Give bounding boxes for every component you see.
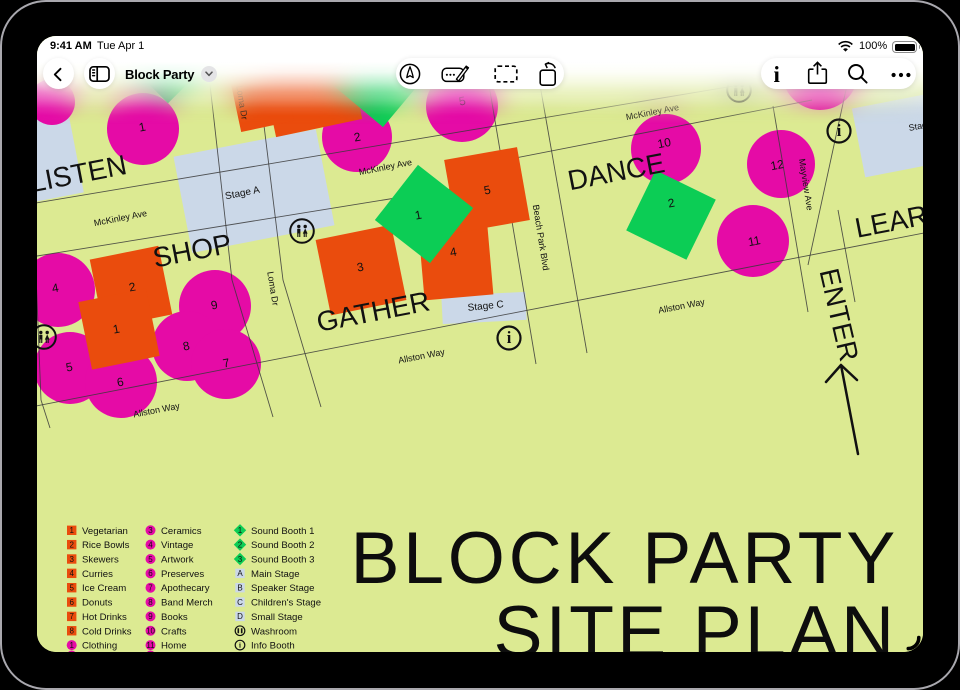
svg-text:Home: Home: [161, 641, 187, 652]
svg-text:6: 6: [148, 569, 153, 578]
svg-text:A: A: [237, 569, 243, 578]
svg-text:Band Merch: Band Merch: [161, 598, 213, 609]
svg-text:Rice Bowls: Rice Bowls: [82, 540, 130, 551]
svg-text:8: 8: [69, 627, 74, 636]
svg-text:Cold Drinks: Cold Drinks: [82, 626, 132, 637]
svg-text:Curries: Curries: [82, 569, 113, 580]
svg-text:C: C: [237, 598, 243, 607]
svg-text:Sound Booth 3: Sound Booth 3: [251, 555, 314, 566]
svg-text:Vintage: Vintage: [161, 540, 193, 551]
svg-text:Books: Books: [161, 612, 188, 623]
svg-text:3: 3: [69, 555, 74, 564]
svg-text:5: 5: [69, 584, 74, 593]
svg-text:Hot Drinks: Hot Drinks: [82, 612, 127, 623]
svg-text:Small Stage: Small Stage: [251, 612, 303, 623]
svg-text:D: D: [237, 612, 243, 621]
svg-text:7: 7: [69, 612, 74, 621]
svg-text:1: 1: [69, 641, 74, 650]
svg-text:10: 10: [146, 627, 155, 636]
svg-text:Preserves: Preserves: [161, 569, 204, 580]
svg-text:Sound Booth 1: Sound Booth 1: [251, 526, 314, 537]
svg-text:3: 3: [238, 555, 243, 564]
svg-text:Artwork: Artwork: [161, 555, 194, 566]
svg-text:1: 1: [238, 526, 243, 535]
svg-text:Washroom: Washroom: [251, 626, 297, 637]
svg-text:8: 8: [148, 598, 153, 607]
svg-text:4: 4: [148, 540, 153, 549]
svg-text:7: 7: [148, 584, 153, 593]
svg-text:4: 4: [69, 569, 74, 578]
svg-text:Apothecary: Apothecary: [161, 583, 210, 594]
svg-text:i: i: [239, 642, 241, 650]
svg-text:Vegetarian: Vegetarian: [82, 526, 128, 537]
svg-text:Main Stage: Main Stage: [251, 569, 300, 580]
svg-text:Children's Stage: Children's Stage: [251, 598, 321, 609]
svg-text:2: 2: [238, 540, 243, 549]
svg-text:Ice Cream: Ice Cream: [82, 583, 126, 594]
svg-text:Info Booth: Info Booth: [251, 641, 295, 652]
svg-text:Donuts: Donuts: [82, 598, 113, 609]
svg-text:B: B: [237, 584, 242, 593]
svg-text:1: 1: [69, 526, 74, 535]
svg-text:Ceramics: Ceramics: [161, 526, 202, 537]
svg-text:i: i: [507, 328, 512, 347]
svg-text:BLOCK PARTY: BLOCK PARTY: [350, 516, 899, 599]
svg-text:6: 6: [69, 598, 74, 607]
svg-text:5: 5: [148, 555, 153, 564]
svg-text:Crafts: Crafts: [161, 626, 187, 637]
svg-text:Speaker Stage: Speaker Stage: [251, 583, 314, 594]
svg-text:11: 11: [146, 641, 155, 650]
svg-text:SITE PLAN: SITE PLAN: [493, 590, 897, 652]
svg-text:3: 3: [148, 526, 153, 535]
svg-text:2: 2: [69, 540, 74, 549]
svg-text:Sound Booth 2: Sound Booth 2: [251, 540, 314, 551]
svg-text:Skewers: Skewers: [82, 555, 119, 566]
svg-text:9: 9: [148, 612, 153, 621]
svg-text:Clothing: Clothing: [82, 641, 117, 652]
